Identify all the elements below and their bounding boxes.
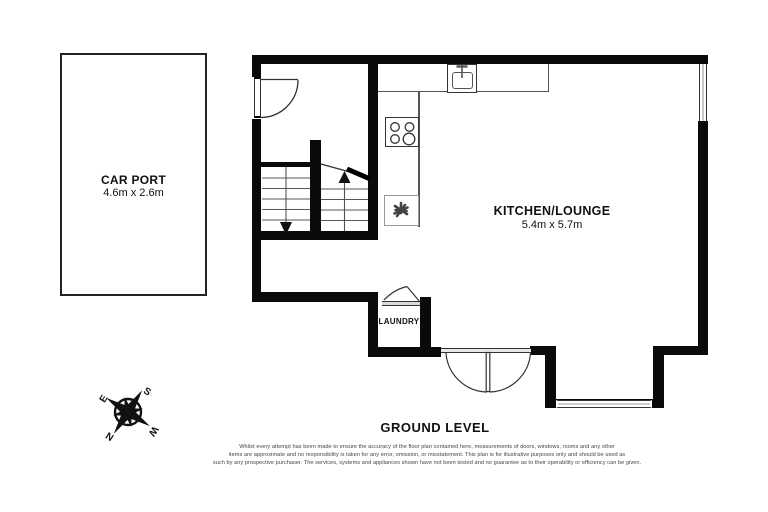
compass-w: W [145, 424, 160, 438]
carport-label: CAR PORT [60, 173, 207, 187]
laundry-label: LAUNDRY [367, 317, 431, 326]
kitchen-dims: 5.4m x 5.7m [452, 219, 652, 231]
counter-right-end [548, 64, 550, 92]
wall-stair-top-left [261, 162, 311, 167]
wall-right [698, 121, 708, 355]
wall-bottom-left [252, 292, 378, 302]
carport-dims: 4.6m x 2.6m [60, 187, 207, 199]
disclaimer-line-1: Whilst every attempt has been made to en… [107, 444, 747, 450]
kitchen-label: KITCHEN/LOUNGE [452, 204, 652, 218]
french-doors-icon [446, 353, 531, 393]
wall-bottom-right [653, 346, 708, 355]
window-right-wall [699, 64, 707, 121]
page-title: GROUND LEVEL [285, 420, 585, 435]
laundry-door-threshold [382, 301, 420, 306]
sink-bowl [452, 72, 473, 89]
wall-top [252, 55, 708, 64]
compass-n: N [104, 429, 116, 442]
wall-left-top-stub [252, 55, 261, 77]
compass-e: E [98, 393, 111, 405]
entry-door-icon [261, 80, 299, 118]
entry-door-frame [254, 77, 261, 118]
floor-plan: CAR PORT 4.6m x 2.6m [0, 0, 768, 512]
window-bay [556, 400, 652, 408]
compass-s: S [141, 386, 153, 399]
wall-stair-bottom [257, 231, 378, 240]
wall-left [252, 119, 261, 302]
stove-unit [385, 117, 419, 147]
stairs-up-arrow [339, 171, 351, 183]
wall-bay-right [653, 346, 664, 408]
disclaimer-line-3: such by any prospective purchaser. The s… [107, 460, 747, 466]
wall-stair-divider [310, 140, 321, 237]
fan-unit [384, 195, 419, 226]
compass-rose-icon: E S N W [92, 376, 164, 448]
wall-interior-kitchen [368, 55, 378, 238]
disclaimer-line-2: items are approximate and no responsibil… [107, 452, 747, 458]
french-door-frame [441, 348, 531, 353]
